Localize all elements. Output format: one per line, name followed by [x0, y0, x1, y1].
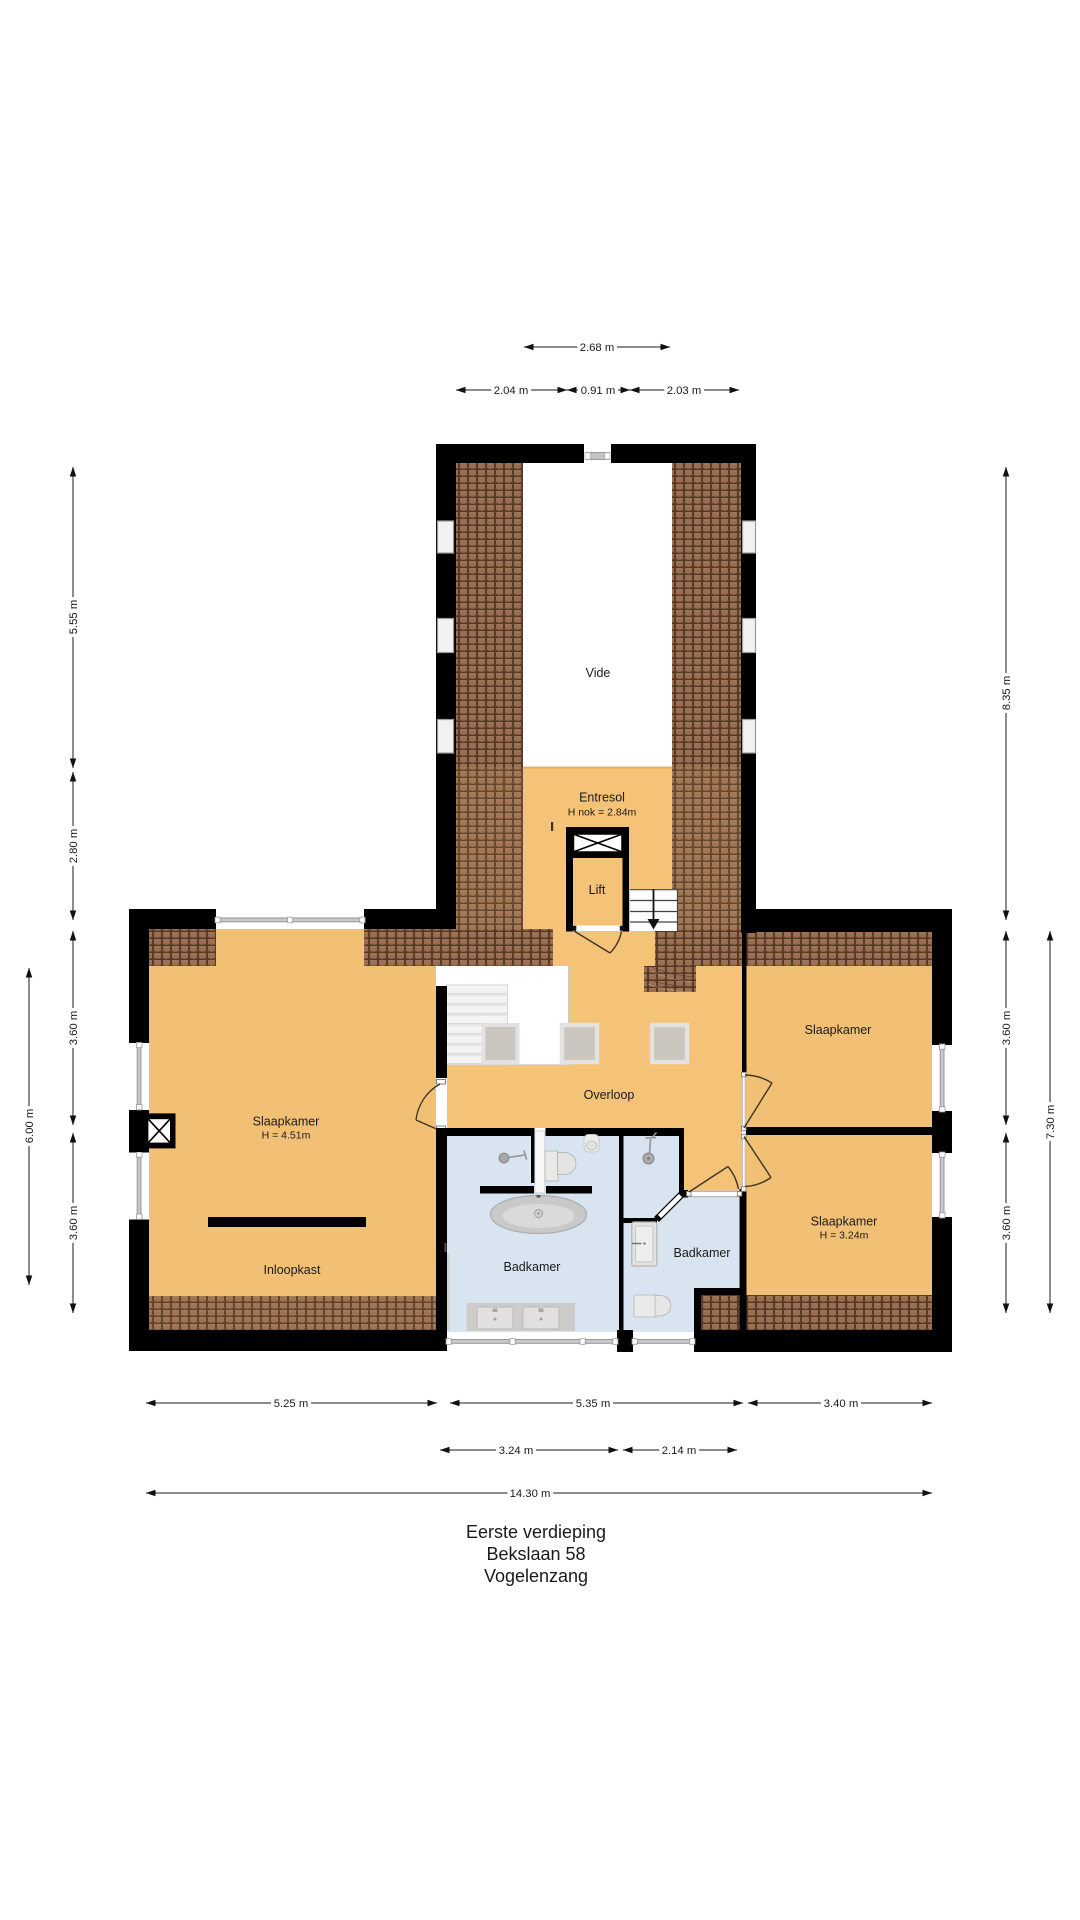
svg-text:H = 4.51m: H = 4.51m	[262, 1130, 311, 1142]
svg-text:8.35 m: 8.35 m	[1001, 676, 1013, 711]
svg-text:Badkamer: Badkamer	[674, 1246, 731, 1260]
svg-text:2.04 m: 2.04 m	[494, 385, 529, 397]
svg-text:6.00 m: 6.00 m	[24, 1109, 36, 1144]
svg-text:7.30 m: 7.30 m	[1045, 1105, 1057, 1140]
svg-text:3.60 m: 3.60 m	[1001, 1206, 1013, 1241]
svg-text:H = 3.24m: H = 3.24m	[820, 1230, 869, 1242]
svg-text:Badkamer: Badkamer	[504, 1260, 561, 1274]
svg-text:Vide: Vide	[586, 666, 611, 680]
svg-text:5.35 m: 5.35 m	[576, 1398, 611, 1410]
svg-text:2.03 m: 2.03 m	[667, 385, 702, 397]
svg-text:0.91 m: 0.91 m	[581, 385, 616, 397]
svg-text:3.40 m: 3.40 m	[824, 1398, 859, 1410]
svg-text:3.60 m: 3.60 m	[1001, 1011, 1013, 1046]
svg-text:Eerste verdieping: Eerste verdieping	[466, 1522, 606, 1542]
svg-text:Slaapkamer: Slaapkamer	[805, 1023, 872, 1037]
svg-text:Slaapkamer: Slaapkamer	[811, 1215, 878, 1229]
svg-text:2.80 m: 2.80 m	[68, 829, 80, 864]
svg-text:2.14 m: 2.14 m	[662, 1445, 697, 1457]
svg-text:5.25 m: 5.25 m	[274, 1398, 309, 1410]
svg-text:5.55 m: 5.55 m	[68, 600, 80, 635]
svg-text:Lift: Lift	[589, 883, 606, 897]
svg-text:3.24 m: 3.24 m	[499, 1445, 534, 1457]
svg-text:Inloopkast: Inloopkast	[264, 1263, 322, 1277]
svg-text:Vogelenzang: Vogelenzang	[484, 1566, 588, 1586]
svg-text:3.60 m: 3.60 m	[68, 1011, 80, 1046]
svg-text:3.60 m: 3.60 m	[68, 1206, 80, 1241]
svg-text:Entresol: Entresol	[579, 791, 625, 805]
svg-text:14.30 m: 14.30 m	[510, 1488, 551, 1500]
svg-text:Slaapkamer: Slaapkamer	[253, 1115, 320, 1129]
svg-text:Overloop: Overloop	[584, 1088, 635, 1102]
svg-text:H nok = 2.84m: H nok = 2.84m	[568, 807, 637, 819]
svg-text:Bekslaan 58: Bekslaan 58	[486, 1544, 585, 1564]
svg-text:2.68 m: 2.68 m	[580, 342, 615, 354]
